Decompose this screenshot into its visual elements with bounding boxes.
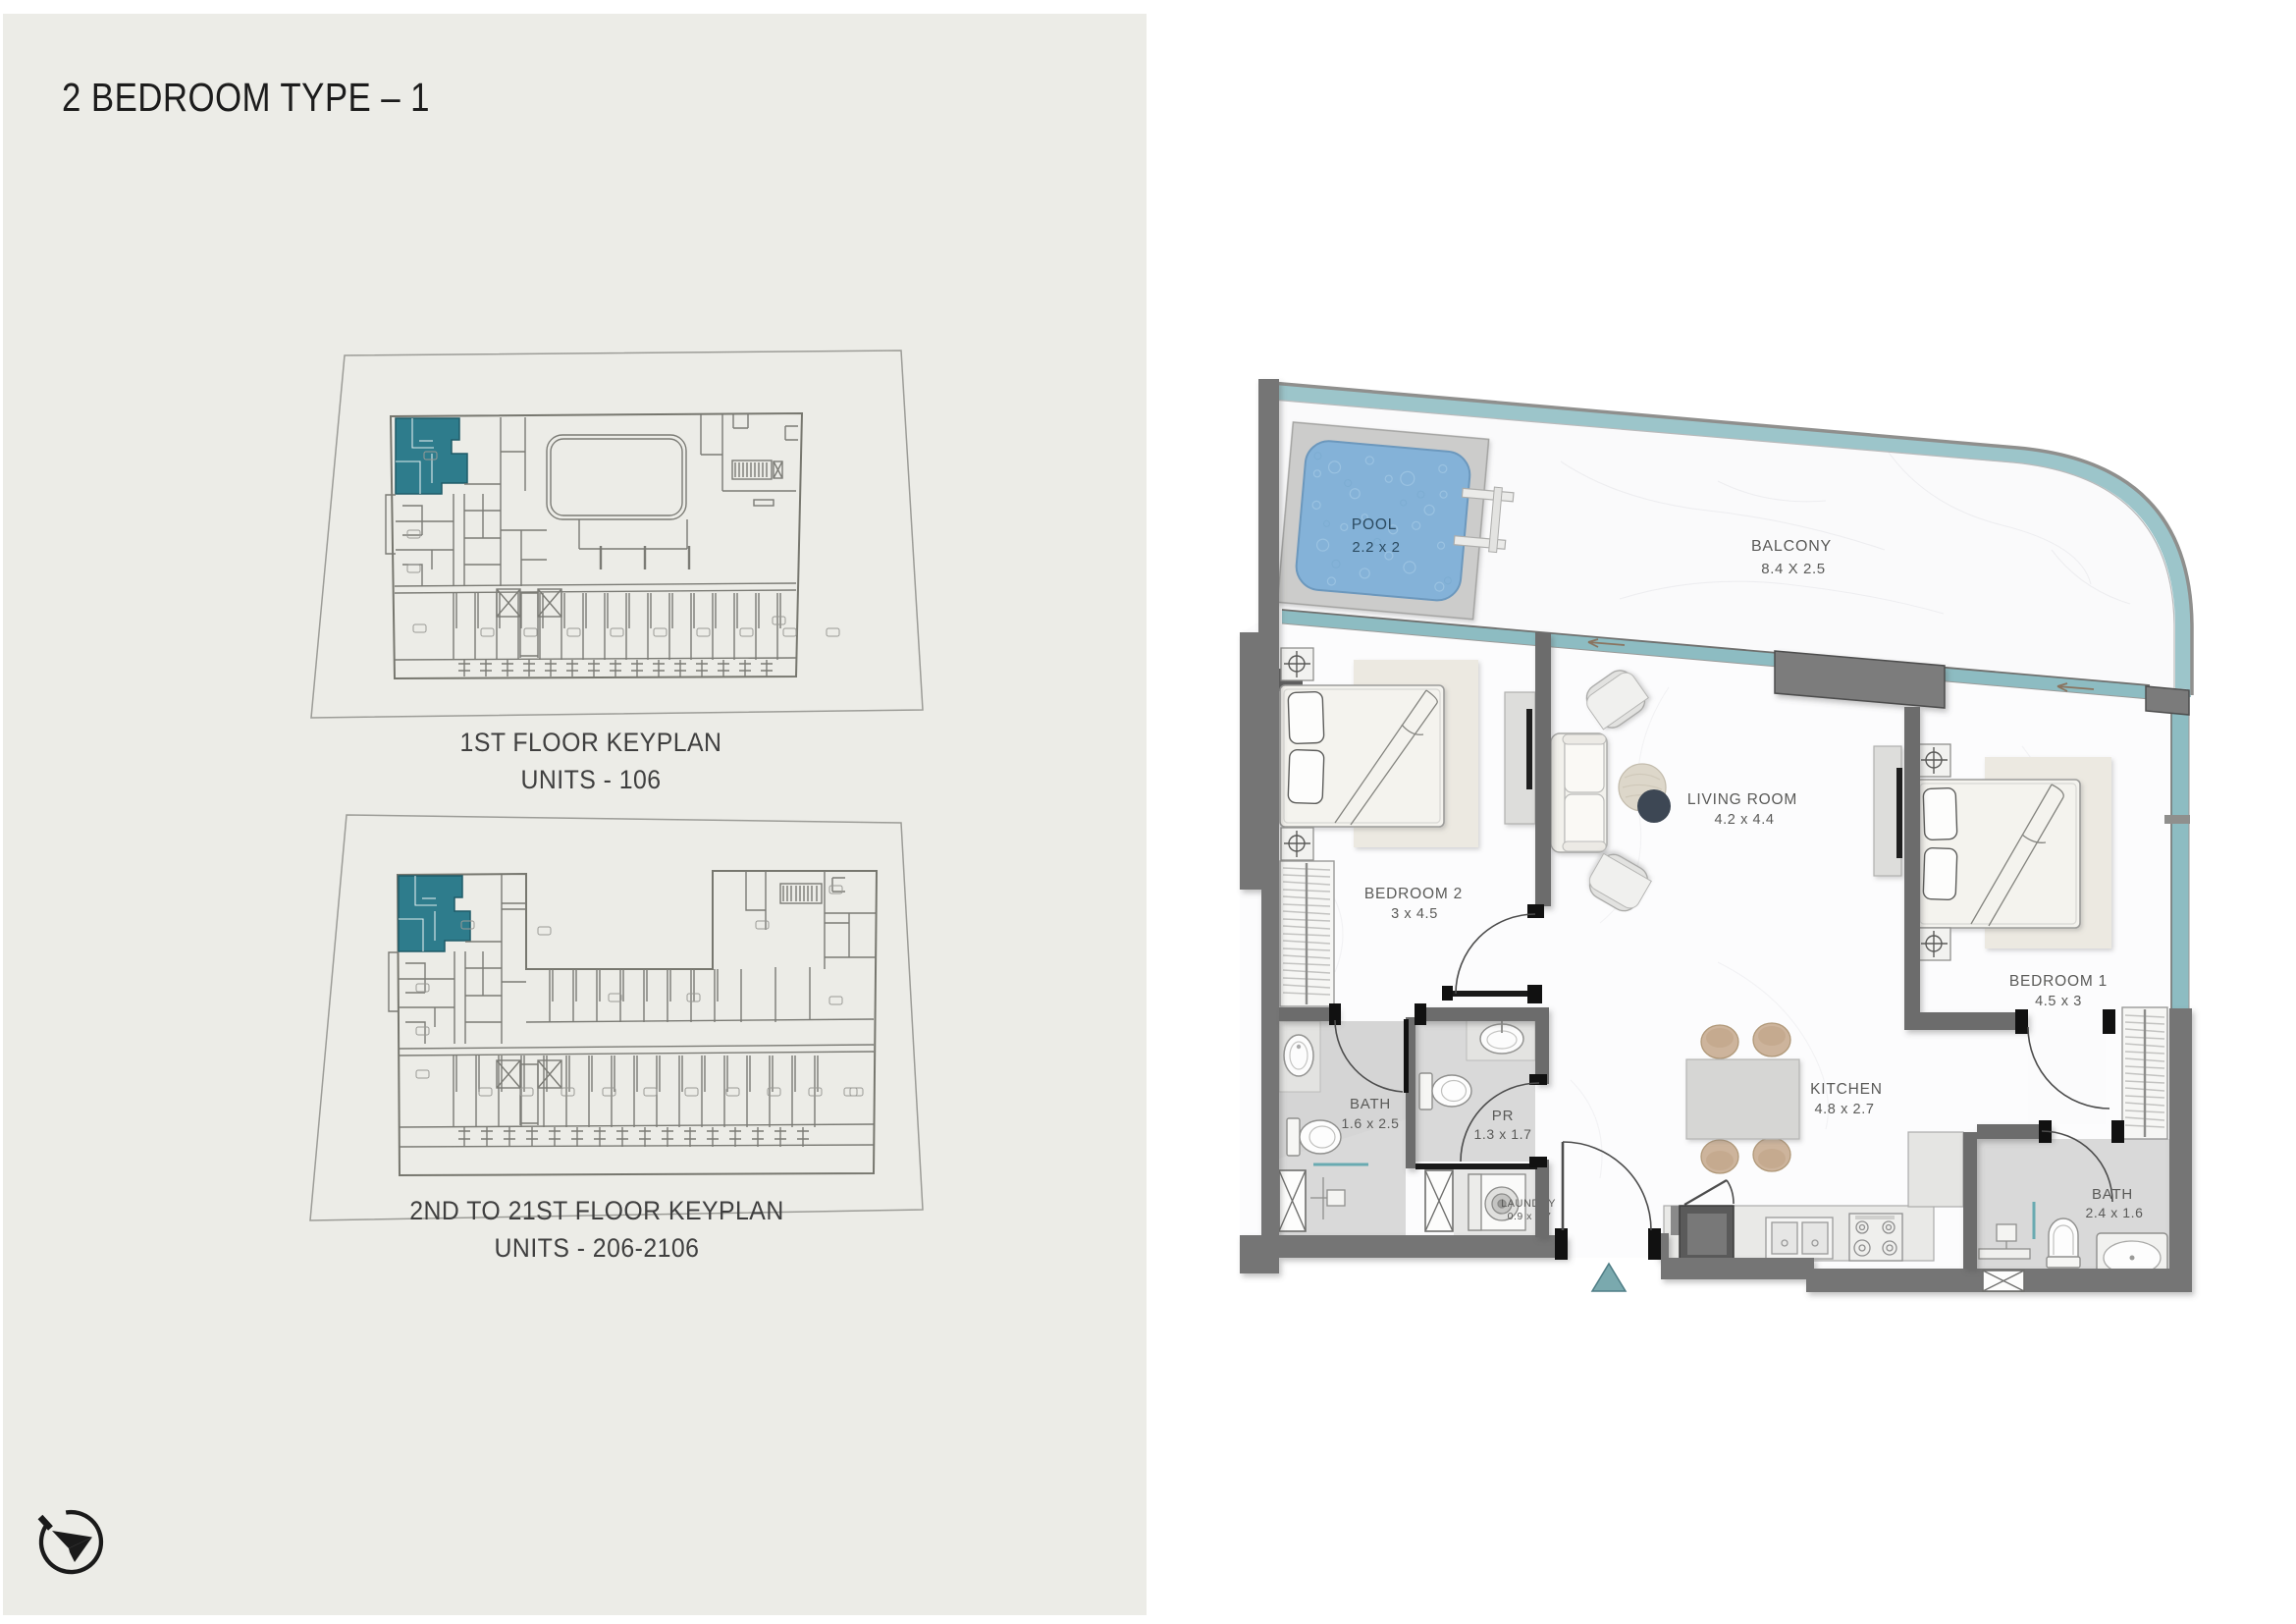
svg-text:8.4 X 2.5: 8.4 X 2.5	[1761, 561, 1825, 577]
svg-text:4.8 x 2.7: 4.8 x 2.7	[1814, 1102, 1874, 1117]
svg-text:2.4 x 1.6: 2.4 x 1.6	[2085, 1205, 2143, 1220]
svg-text:BEDROOM 1: BEDROOM 1	[2009, 973, 2108, 990]
svg-text:BEDROOM 2: BEDROOM 2	[1364, 886, 1463, 902]
svg-text:1.6 x 2.5: 1.6 x 2.5	[1341, 1115, 1399, 1131]
svg-text:4.5 x 3: 4.5 x 3	[2035, 994, 2082, 1009]
svg-text:4.2 x 4.4: 4.2 x 4.4	[1714, 812, 1774, 828]
svg-text:1.3 x 1.7: 1.3 x 1.7	[1473, 1126, 1531, 1142]
svg-text:3 x 4.5: 3 x 4.5	[1391, 906, 1438, 922]
svg-text:2.2 x 2: 2.2 x 2	[1352, 539, 1400, 556]
svg-text:PR: PR	[1492, 1108, 1514, 1124]
svg-text:KITCHEN: KITCHEN	[1810, 1081, 1883, 1098]
svg-text:LIVING ROOM: LIVING ROOM	[1687, 791, 1797, 808]
svg-text:POOL: POOL	[1352, 516, 1397, 533]
svg-text:BALCONY: BALCONY	[1751, 538, 1832, 555]
svg-text:BATH: BATH	[1350, 1096, 1391, 1112]
